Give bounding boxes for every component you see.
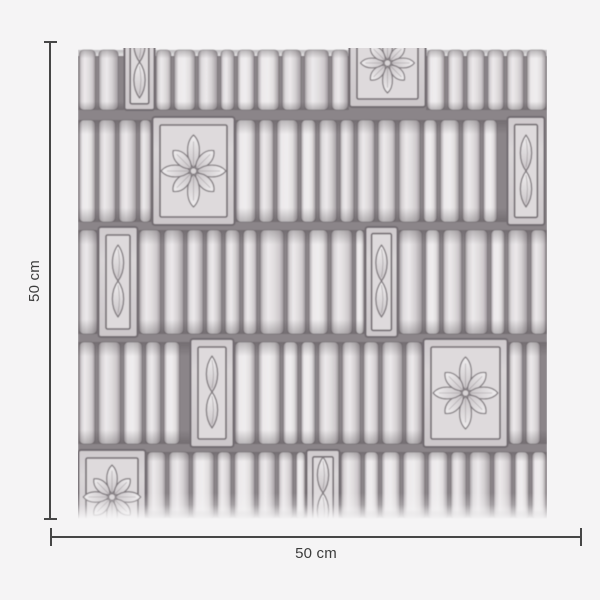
horizontal-dimension-line: [50, 536, 582, 538]
dimension-cap-bottom: [44, 518, 57, 520]
vertical-dimension-line: [49, 41, 51, 520]
width-label: 50 cm: [236, 545, 396, 563]
dimension-cap-top: [44, 41, 57, 43]
dimension-cap-right: [580, 528, 582, 546]
wallpaper-swatch: [78, 48, 547, 519]
product-dimension-figure: 50 cm 50 cm: [0, 0, 600, 600]
dimension-cap-left: [50, 528, 52, 546]
pattern-svg: [78, 48, 547, 519]
height-label: 50 cm: [26, 201, 44, 361]
